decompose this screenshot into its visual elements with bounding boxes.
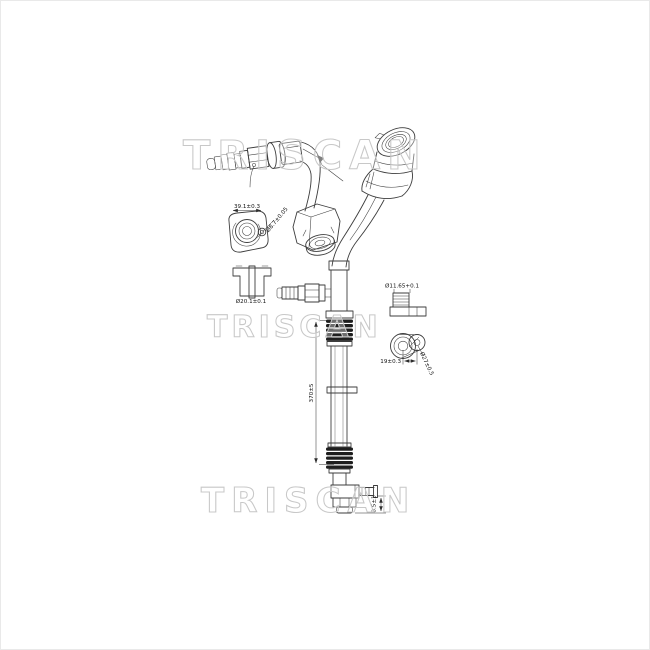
corrugated-sleeve-lower xyxy=(326,443,353,473)
dim-eyelet-spacing: 19±0.3 xyxy=(380,359,401,365)
dim-flange-width: 39.1±0.3 xyxy=(234,204,260,210)
hose-mid xyxy=(327,346,357,446)
service-valve xyxy=(277,284,331,302)
technical-drawing: 39.1±0.3 Ø8.7±0.05 Ø20.1±0.1 Ø11.65+0.1 … xyxy=(0,0,650,650)
block-fitting xyxy=(293,204,340,258)
watermarks: TRISCAN TRISCAN TRISCAN xyxy=(183,133,428,521)
dim-valve-port: Ø11.65+0.1 xyxy=(385,283,419,290)
watermark-top: TRISCAN xyxy=(183,133,428,179)
dim-section-bore: Ø20.1±0.1 xyxy=(236,298,267,305)
dim-eyelet-outer: Ø27±0.5 xyxy=(418,351,435,377)
catalog-image-page: 39.1±0.3 Ø8.7±0.05 Ø20.1±0.1 Ø11.65+0.1 … xyxy=(0,0,650,650)
valve-port-detail-view xyxy=(390,289,426,316)
watermark-bottom: TRISCAN xyxy=(201,481,416,521)
dim-hose-length: 370±5 xyxy=(309,383,315,402)
dim-flange-hole: Ø8.7±0.05 xyxy=(265,206,290,234)
main-hose-curve xyxy=(332,195,384,267)
watermark-middle: TRISCAN xyxy=(207,310,382,345)
cross-section-detail-view xyxy=(233,266,271,298)
